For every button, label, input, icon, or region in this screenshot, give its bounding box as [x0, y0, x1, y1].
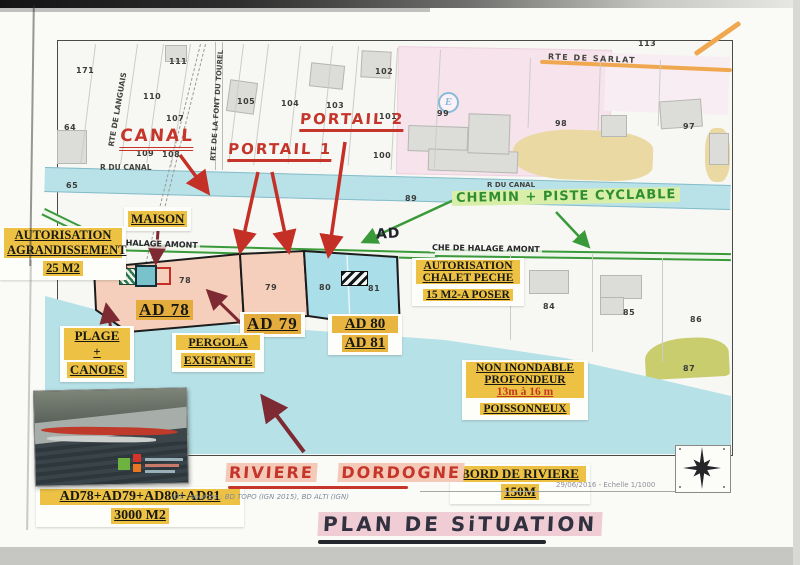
- parcel-number: 110: [143, 92, 161, 101]
- portail1-arrow-b: [272, 172, 288, 248]
- canal-arrow: [180, 155, 206, 190]
- plage-line1: PLAGE: [64, 328, 130, 344]
- parcel-number: 85: [623, 308, 635, 317]
- label-plage-canoes: PLAGE + CANOES: [60, 326, 134, 382]
- plage-line3: CANOES: [67, 362, 127, 378]
- road-label-r-du-canal-right: R DU CANAL: [487, 181, 535, 189]
- parcel-number: 100: [373, 151, 391, 160]
- parcel-number: 81: [368, 284, 380, 293]
- annotation-canal: CANAL: [119, 126, 195, 151]
- ad78-text: AD 78: [136, 300, 193, 320]
- annotation-portail-1: PORTAIL 1: [227, 140, 333, 162]
- chalet-line2: CHALET PECHE: [416, 272, 520, 284]
- parcel-number: 107: [166, 114, 184, 123]
- logo-orange-square: [133, 464, 141, 472]
- scan-edge-right: [793, 0, 800, 565]
- date-scale-text: 29/06/2016 - Echelle 1/1000: [556, 481, 655, 489]
- logo-red-square: [133, 454, 141, 462]
- parcel-number: 89: [405, 194, 417, 203]
- parcel-number: 86: [690, 315, 702, 324]
- sources-text: IDS - sources : BD TOPO (IGN 2015), BD A…: [172, 493, 349, 501]
- parcel-number: 87: [683, 364, 695, 373]
- scan-edge-top-shadow: [0, 8, 430, 12]
- bord-line2: 150M: [501, 484, 539, 500]
- ad79-text: AD 79: [244, 314, 301, 334]
- label-autorisation-agrandissement: AUTORISATION AGRANDISSEMENT 25 M2: [0, 226, 126, 280]
- inondable-line2: PROFONDEUR: [466, 374, 584, 386]
- towpath-label-right: CHE DE HALAGE AMONT: [430, 243, 542, 254]
- riviere-word2: DORDOGNE: [338, 463, 465, 482]
- annotation-riviere: RIVIERE DORDOGNE: [225, 463, 464, 482]
- parcel-number: 80: [319, 283, 331, 292]
- label-pergola: PERGOLA EXISTANTE: [172, 333, 264, 372]
- parcel-number: 171: [76, 66, 94, 75]
- label-non-inondable: NON INONDABLE PROFONDEUR 13m à 16 m POIS…: [462, 360, 588, 420]
- logo-text-bar2: [145, 464, 179, 467]
- compass-rose-icon: [676, 446, 728, 490]
- parcel-number: 108: [162, 150, 180, 159]
- parcel-number: 103: [326, 101, 344, 110]
- compass-box: [675, 445, 731, 493]
- parcel-number: 99: [437, 109, 449, 118]
- pergola-line1: PERGOLA: [176, 335, 260, 350]
- label-ad80-ad81: AD 80 AD 81: [328, 314, 402, 355]
- parcel-number: 64: [64, 123, 76, 132]
- label-maison: MAISON: [124, 207, 191, 231]
- parcel-number: 111: [169, 57, 187, 66]
- parcel-number: 105: [237, 97, 255, 106]
- surface-line2: 3000 M2: [111, 508, 169, 524]
- ad81-text: AD 81: [342, 335, 388, 352]
- plan-title: PLAN DE SiTUATION: [317, 512, 602, 536]
- logo-text-bar3: [145, 470, 175, 473]
- chalet-peche-hatched: [341, 271, 368, 286]
- chalet-line1: AUTORISATION: [416, 260, 520, 272]
- chemin-arrow-right: [556, 212, 587, 245]
- scan-edge-bottom: [0, 547, 800, 565]
- house-teal-square: [135, 265, 157, 287]
- inondable-line3: 13m à 16 m: [466, 386, 584, 398]
- plan-title-underline: [318, 540, 546, 544]
- portail1-arrow-a: [241, 172, 258, 248]
- logo-green-square: [118, 458, 130, 470]
- inondable-line1: NON INONDABLE: [466, 362, 584, 374]
- bord-line1: BORD DE RIVIERE: [454, 466, 586, 482]
- parcel-number: 104: [281, 99, 299, 108]
- plage-line2: +: [64, 344, 130, 360]
- scan-edge-top: [0, 0, 800, 8]
- label-ad78: AD 78: [136, 300, 193, 320]
- annotation-portail-2: PORTAIL 2: [299, 110, 405, 132]
- logo-text-bar1: [145, 458, 183, 461]
- community-logo: [118, 452, 190, 482]
- ad-path-label: AD: [376, 225, 401, 242]
- parcel-number: 97: [683, 122, 695, 131]
- parcel-number: 65: [66, 181, 78, 190]
- label-autorisation-chalet: AUTORISATION CHALET PECHE 15 M2-A POSER: [412, 258, 524, 306]
- parcel-number: 98: [555, 119, 567, 128]
- parcel-number: 102: [375, 67, 393, 76]
- chalet-line3: 15 M2-A POSER: [423, 289, 513, 301]
- maison-text: MAISON: [128, 211, 187, 227]
- parcel-number: 79: [265, 283, 277, 292]
- agrandissement-line1: AUTORISATION: [4, 228, 122, 243]
- riviere-word1: RIVIERE: [225, 463, 317, 482]
- parcel-number: 113: [638, 39, 656, 48]
- riviere-underline: [228, 486, 408, 489]
- pergola-line2: EXISTANTE: [181, 353, 255, 368]
- road-label-r-du-canal-left: R DU CANAL: [100, 163, 151, 172]
- ad80-text: AD 80: [332, 316, 398, 333]
- riviere-arrow: [265, 400, 304, 452]
- agrandissement-line2: AGRANDISSEMENT: [4, 243, 122, 258]
- agrandissement-line3: 25 M2: [43, 261, 83, 276]
- scanned-page: RTE DE SARLAT RTE DE LANGUAIS RTE DE LA …: [0, 0, 800, 565]
- parcel-number: 78: [179, 276, 191, 285]
- inondable-line4: POISSONNEUX: [480, 403, 569, 415]
- parcel-number: 84: [543, 302, 555, 311]
